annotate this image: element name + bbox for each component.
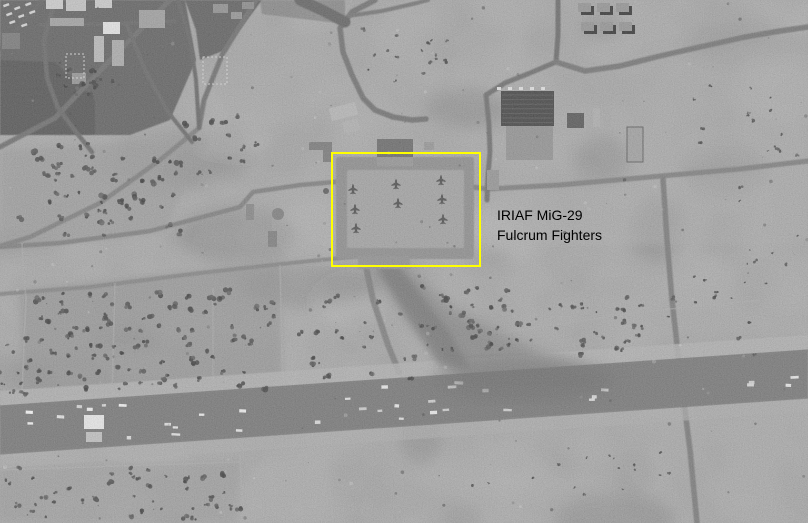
- satellite-imagery: [0, 0, 808, 523]
- photo-render-layer: [0, 0, 808, 523]
- annotation-label-line1: IRIAF MiG-29: [497, 205, 602, 225]
- reconnaissance-photo: IRIAF MiG-29 Fulcrum Fighters: [0, 0, 808, 523]
- film-grain: [0, 0, 808, 523]
- annotation-label-line2: Fulcrum Fighters: [497, 225, 602, 245]
- annotation-label: IRIAF MiG-29 Fulcrum Fighters: [497, 205, 602, 245]
